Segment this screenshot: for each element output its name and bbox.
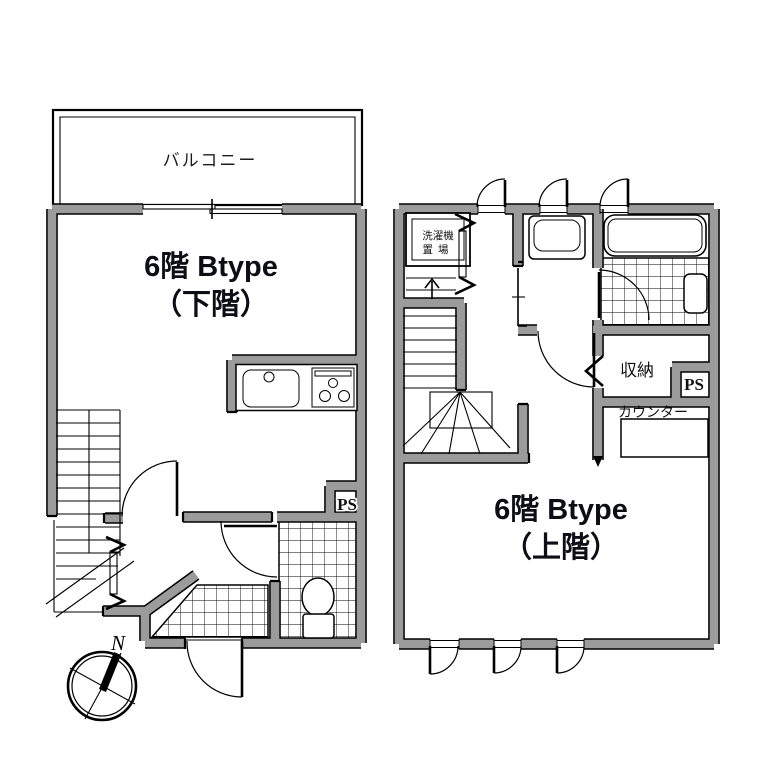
balcony-sliding-window-icon: [143, 199, 282, 219]
lower-pipe-space-label: PS: [337, 495, 357, 514]
compass-needle: [99, 652, 121, 692]
bath-seat-icon: [684, 274, 707, 313]
toilet-icon: [302, 578, 334, 638]
upper-floor-title-line1: 6階 Btype: [494, 493, 628, 526]
lower-floor-title-line1: 6階 Btype: [144, 250, 278, 283]
washer-label-line2: 置場: [423, 243, 454, 256]
storage-label: 収納: [620, 361, 654, 380]
entry-door: [185, 640, 242, 697]
balcony-label: バルコニー: [163, 151, 258, 170]
top-exterior-doors: [477, 179, 628, 207]
kitchen-counter: [236, 365, 357, 411]
lower-floor-plan: バルコニー 6階 Btype （下階） PS: [46, 110, 362, 697]
upper-floor-plan: 洗濯機 置場: [399, 179, 714, 674]
stair-direction-arrow-icon: [425, 279, 439, 299]
floorplan-drawing: バルコニー 6階 Btype （下階） PS: [0, 0, 760, 760]
counter-label: カウンター: [618, 404, 688, 420]
top-door-thresholds: [478, 204, 628, 214]
washing-machine-space: 洗濯機 置場: [406, 213, 470, 266]
sliding-door-icon: [512, 268, 527, 326]
hall-door: [538, 331, 594, 387]
folding-door-icon: [106, 537, 124, 609]
living-room-door: [122, 461, 177, 516]
north-label: N: [110, 631, 126, 655]
bathtub-icon: [604, 215, 706, 256]
washer-label-line1: 洗濯機: [422, 229, 454, 242]
toilet-door: [221, 521, 277, 577]
counter-top: [621, 419, 708, 457]
floorplan-page: バルコニー 6階 Btype （下階） PS: [0, 0, 760, 760]
counter-wall-cap: [593, 456, 603, 467]
upper-floor-title-line2: （上階）: [503, 531, 619, 564]
compass-icon: N: [68, 631, 136, 720]
washbasin-icon: [529, 216, 585, 259]
lower-floor-title-line2: （下階）: [153, 288, 269, 321]
bottom-outswing-windows: [430, 646, 584, 674]
bottom-window-thresholds: [430, 639, 584, 649]
upper-pipe-space-label: PS: [684, 375, 704, 394]
